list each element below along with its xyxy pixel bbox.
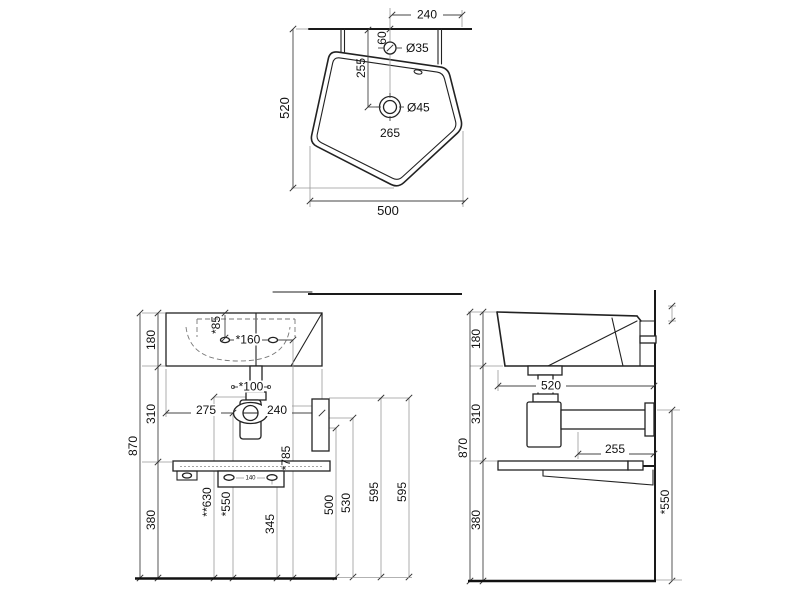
shelf-side bbox=[498, 461, 654, 485]
dim-label-60: 60 bbox=[375, 31, 389, 45]
side-view-ticks bbox=[467, 309, 675, 584]
dim-label-530: 530 bbox=[339, 493, 353, 513]
waste-pipe-side bbox=[561, 410, 647, 429]
dim-label-380: 380 bbox=[144, 510, 158, 530]
dim-label-550-side: *550 bbox=[658, 489, 672, 514]
shelf-front bbox=[173, 461, 330, 487]
dim-label-240: 240 bbox=[267, 403, 287, 417]
dim-label-180-side: 180 bbox=[469, 329, 483, 349]
dim-label-180: 180 bbox=[144, 330, 158, 350]
mounting-bolt bbox=[640, 336, 656, 343]
dim-label-310: 310 bbox=[144, 404, 158, 424]
tap-hole-label: Ø35 bbox=[406, 41, 429, 55]
dim-label-500: 500 bbox=[377, 203, 399, 218]
dim-label-595b: 595 bbox=[395, 482, 409, 502]
tap-hole-right bbox=[269, 337, 278, 342]
dim-label-380-side: 380 bbox=[469, 510, 483, 530]
drain-hole bbox=[376, 93, 404, 121]
dim-label-140: 140 bbox=[245, 476, 256, 482]
dim-label-85: *85 bbox=[209, 316, 223, 334]
dim-label-595a: 595 bbox=[367, 482, 381, 502]
washbasin-technical-drawing: 240 60 Ø35 255 Ø45 265 520 500 bbox=[0, 0, 800, 600]
side-view: 180 310 380 870 520 255 *550 bbox=[456, 290, 682, 584]
dim-label-520: 520 bbox=[277, 97, 292, 119]
dim-label-160: *160 bbox=[236, 333, 261, 347]
dim-label-785: *785 bbox=[279, 445, 293, 470]
dim-520 bbox=[290, 26, 394, 191]
dim-label-870-side: 870 bbox=[456, 438, 470, 458]
dim-label-550: *550 bbox=[219, 491, 233, 516]
basin-side bbox=[497, 312, 656, 366]
dim-label-265: 265 bbox=[380, 126, 400, 140]
dim-label-520-side: 520 bbox=[541, 379, 561, 393]
dim-label-630: **630 bbox=[200, 487, 214, 517]
waste-outlet-front bbox=[312, 399, 329, 451]
dim-label-255-side: 255 bbox=[605, 442, 625, 456]
dim-label-870: 870 bbox=[126, 436, 140, 456]
dim-label-500: 500 bbox=[322, 495, 336, 515]
drain-hole-label: Ø45 bbox=[407, 101, 430, 115]
basin-outline-inner bbox=[317, 58, 456, 180]
dim-500 bbox=[307, 131, 468, 207]
dim-label-310-side: 310 bbox=[469, 404, 483, 424]
dim-label-275: 275 bbox=[196, 403, 216, 417]
front-view: 180 310 380 870 *85 *160 *100 275 240 **… bbox=[126, 292, 462, 581]
dim-label-345: 345 bbox=[263, 514, 277, 534]
dim-label-100: *100 bbox=[239, 380, 264, 394]
wall-reference-marks bbox=[668, 303, 676, 324]
dim-label-255: 255 bbox=[354, 58, 368, 78]
dim-label-240: 240 bbox=[417, 8, 437, 22]
top-view: 240 60 Ø35 255 Ø45 265 520 500 bbox=[277, 8, 472, 219]
wall-flange bbox=[645, 403, 654, 436]
